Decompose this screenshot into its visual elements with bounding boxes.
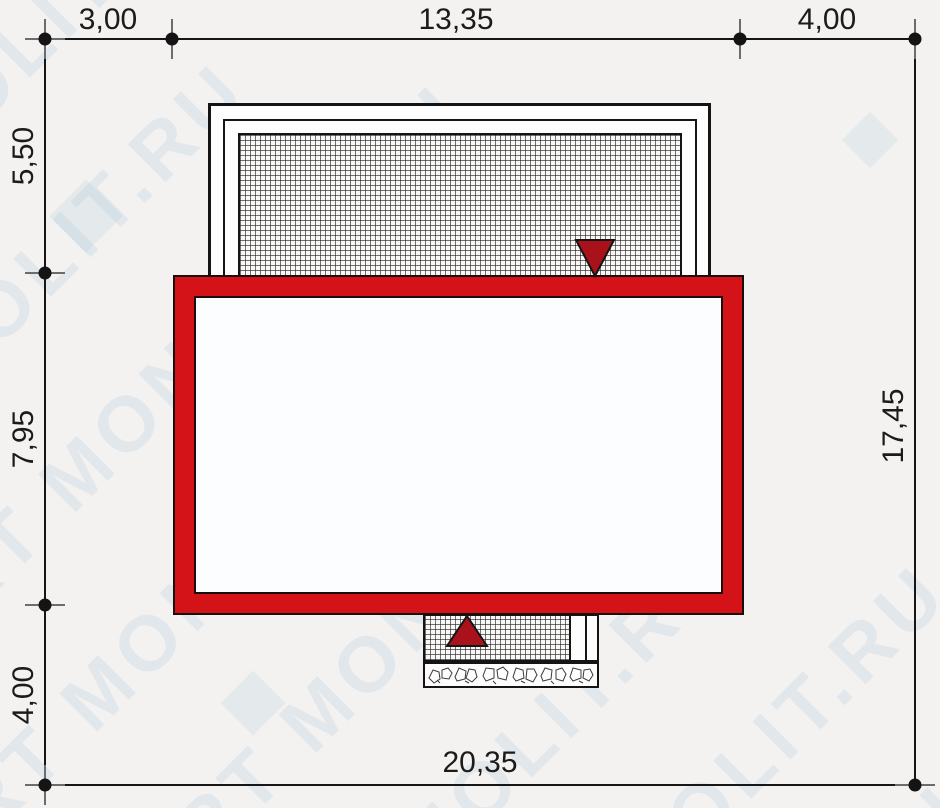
- dim-label-bottom-1: 20,35: [410, 746, 550, 780]
- dimension-dot: [734, 33, 747, 46]
- building-wall-outline: [173, 275, 744, 615]
- stone-blind-area: [423, 662, 599, 688]
- watermark-logo-shape: [49, 179, 123, 253]
- porch-outline: [423, 614, 599, 662]
- dim-label-left-2: 7,95: [7, 369, 41, 509]
- porch-hatch-area: [425, 616, 571, 660]
- dim-label-top-3: 4,00: [757, 3, 897, 37]
- dimension-dot: [909, 779, 922, 792]
- roof-hatch-area: [238, 133, 682, 278]
- dimension-dot: [39, 599, 52, 612]
- stone-texture: [425, 664, 597, 686]
- dimension-line-right: [914, 39, 916, 785]
- porch-step-line: [585, 616, 587, 660]
- site-plan-canvas: EXPERT MONOLIT.RU EXPERT MONOLIT.RU EXPE…: [0, 0, 940, 808]
- dimension-dot: [39, 779, 52, 792]
- dim-label-left-1: 5,50: [7, 86, 41, 226]
- dimension-dot: [39, 267, 52, 280]
- dim-label-right-1: 17,45: [877, 356, 911, 496]
- watermark-logo-shape: [220, 670, 285, 735]
- dimension-dot: [909, 33, 922, 46]
- dim-label-top-1: 3,00: [38, 3, 178, 37]
- dimension-line-bottom: [45, 784, 915, 786]
- building-interior: [194, 296, 723, 594]
- dimension-line-left: [44, 39, 46, 785]
- dim-label-top-2: 13,35: [386, 3, 526, 37]
- watermark-logo-shape: [842, 112, 899, 169]
- dim-label-left-3: 4,00: [7, 625, 41, 765]
